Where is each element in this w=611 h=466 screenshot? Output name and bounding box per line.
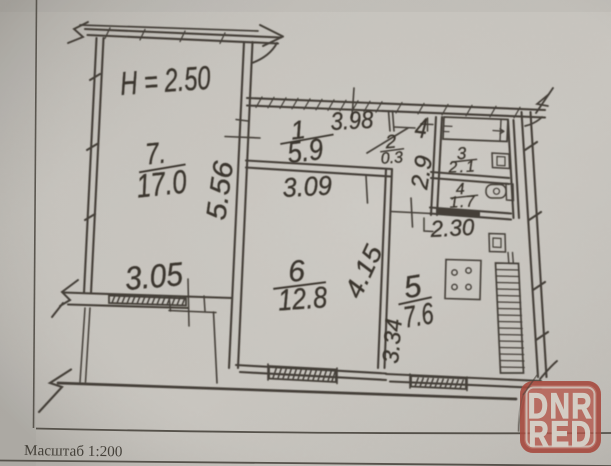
svg-text:3.98: 3.98 [330,105,374,135]
svg-text:RED: RED [529,414,593,454]
svg-text:Масштаб 1:200: Масштаб 1:200 [24,442,123,460]
svg-text:7.6: 7.6 [401,296,436,335]
svg-text:2.9: 2.9 [406,154,438,192]
svg-text:3.34: 3.34 [377,318,407,365]
svg-text:H = 2.50: H = 2.50 [119,60,212,103]
svg-text:0.3: 0.3 [380,149,403,168]
svg-text:1.7: 1.7 [449,193,477,211]
svg-text:12.8: 12.8 [277,280,329,317]
svg-text:3.05: 3.05 [123,256,184,298]
svg-text:2.30: 2.30 [429,214,475,243]
svg-text:2.1: 2.1 [447,158,477,177]
svg-text:3.09: 3.09 [282,170,333,203]
svg-text:17.0: 17.0 [135,163,189,205]
svg-text:5.9: 5.9 [285,132,325,169]
